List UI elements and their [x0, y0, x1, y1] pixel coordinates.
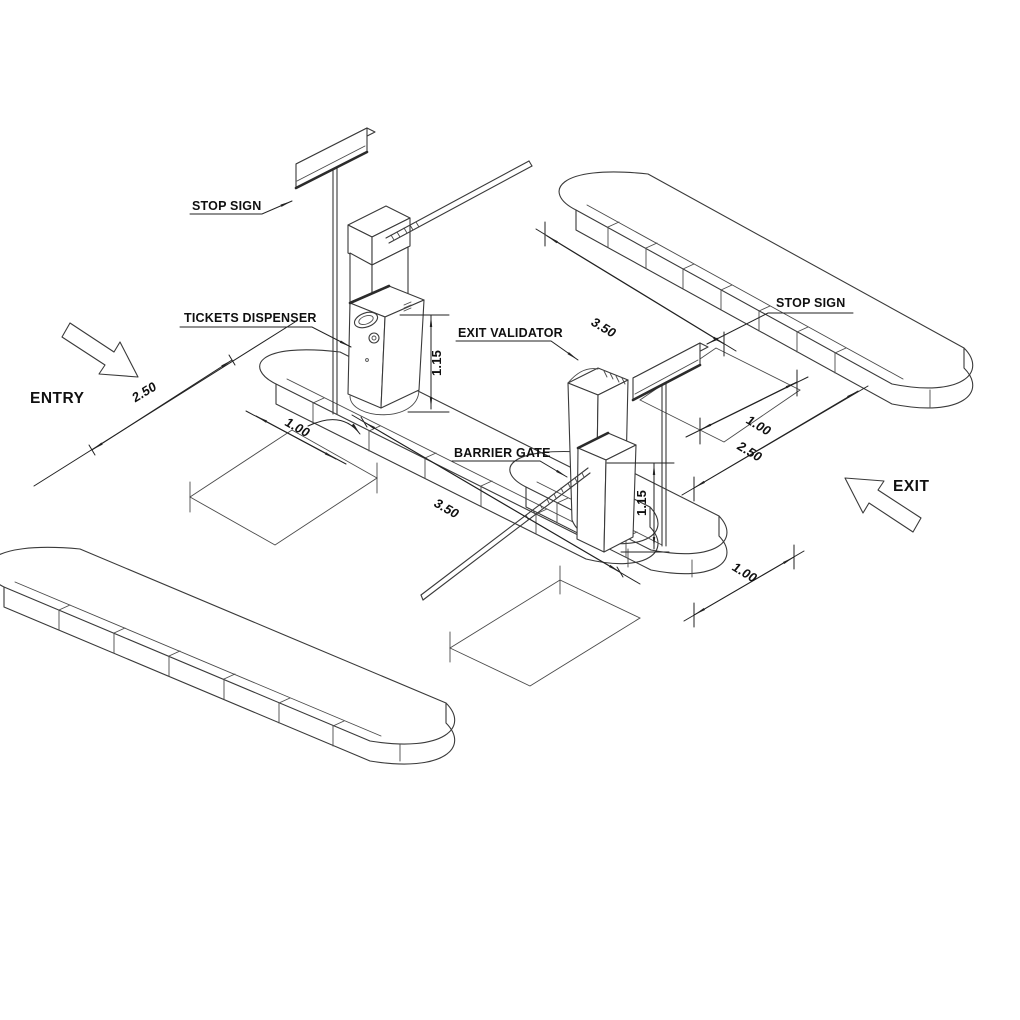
- induction-loop-exit-approach: [450, 566, 640, 686]
- exit-validator-label: EXIT VALIDATOR: [458, 326, 563, 340]
- dim-label-entry-lane-width: 2.50: [130, 378, 158, 405]
- exit-stop-sign-label: STOP SIGN: [776, 296, 845, 310]
- isometric-parking-layout: STOP SIGN TICKETS DISPENSER EXIT VALIDAT…: [0, 0, 1020, 1020]
- tickets-dispenser-machine: [348, 286, 424, 415]
- exit-direction-label: EXIT: [893, 478, 929, 495]
- entry-direction-label: ENTRY: [30, 390, 85, 407]
- dim-exit-island-clearance: [684, 545, 804, 627]
- dim-exit-lane-width: [682, 386, 868, 501]
- dim-label-exit-island-clearance: 1.00: [729, 560, 761, 585]
- dim-label-validator-height: 1.15: [634, 490, 649, 516]
- dim-exit-lane-length: [536, 222, 736, 356]
- leader-tickets-dispenser: [180, 327, 351, 347]
- dim-exit-loop-offset: [686, 370, 808, 444]
- leader-exit-validator: [456, 341, 578, 360]
- dim-label-dispenser-height: 1.15: [429, 350, 444, 376]
- dim-label-entry-lane-length: 3.50: [431, 496, 463, 521]
- dim-label-exit-lane-length: 3.50: [588, 315, 620, 340]
- entry-direction-arrow: [62, 323, 138, 377]
- induction-loop-entry: [190, 430, 377, 545]
- entry-stop-sign-label: STOP SIGN: [192, 199, 261, 213]
- dim-label-exit-loop-offset: 1.00: [743, 413, 775, 438]
- dim-label-exit-lane-width: 2.50: [734, 439, 766, 464]
- annotations: STOP SIGN TICKETS DISPENSER EXIT VALIDAT…: [30, 199, 929, 585]
- tickets-dispenser-label: TICKETS DISPENSER: [184, 311, 317, 325]
- cad-drawing-canvas: STOP SIGN TICKETS DISPENSER EXIT VALIDAT…: [0, 0, 1020, 1020]
- curb-joints: [59, 605, 400, 761]
- entry-side-curb-island: [0, 547, 455, 764]
- dim-label-entry-loop-offset: 1.00: [282, 415, 314, 440]
- barrier-gate-label: BARRIER GATE: [454, 446, 551, 460]
